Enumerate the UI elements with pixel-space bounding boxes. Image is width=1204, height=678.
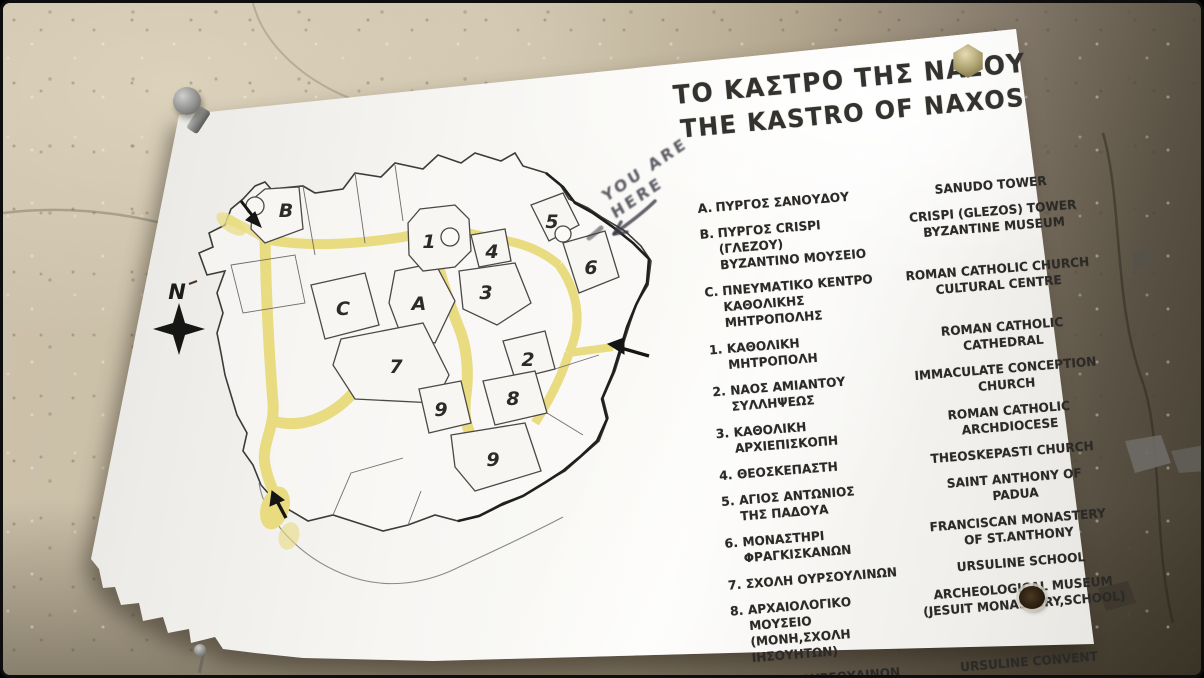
legend-greek: ΑΡΧΑΙΟΛΟΓΙΚΟ ΜΟΥΣΕΙΟ (ΜΟΝΗ,ΣΧΟΛΗ ΙΗΣΟΥΗΤ… [747,590,907,666]
legend-greek: ΣΧΟΛΗ ΟΥΡΣΟΥΛΙΝΩΝ [745,564,897,592]
legend-english: ROMAN CATHOLIC CATHEDRAL [899,311,1107,359]
legend-english: CRISPI (GLEZOS) TOWER BYZANTINE MUSEUM [890,195,1099,259]
label-7: 7 [389,356,403,378]
legend-english: ROMAN CATHOLIC ARCHDIOCESE [906,394,1114,442]
label-9b: 9 [486,449,499,471]
legend-greek: ΑΓΙΟΣ ΑΝΤΩΝΙΟΣ ΤΗΣ ΠΑΔΟΥΑ [739,483,857,524]
label-9a: 9 [434,399,447,421]
building-1-cathedral [408,205,471,271]
legend-english: ROMAN CATHOLIC CHURCH CULTURAL CENTRE [894,253,1103,317]
label-8: 8 [506,388,519,410]
compass-tick [189,281,197,284]
compass-star-icon [153,303,205,355]
legend-key: 4. [718,467,737,484]
photo-of-kastro-map-sign: ΤΟ ΚΑΣΤΡΟ ΤΗΣ ΝΑΞΟΥ THE KASTRO OF NAXOS [0,0,1204,678]
legend-greek: ΠΝΕΥΜΑΤΙΚΟ ΚΕΝΤΡΟ ΚΑΘΟΛΙΚΗΣ ΜΗΤΡΟΠΟΛΗΣ [722,271,881,331]
legend-greek: ΠΥΡΓΟΣ CRISPI (ΓΛΕΖΟΥ) ΒΥΖΑΝΤΙΝΟ ΜΟΥΣΕΙΟ [717,213,876,273]
legend-english: URSULINE CONVENT [926,646,1132,678]
legend-greek: ΜΟΝΗ ΟΥΡΣΟΥΛΙΝΩΝ [753,664,901,678]
legend-english: FRANCISCAN MONASTERY OF ST.ANTHONY [915,504,1123,552]
label-1: 1 [422,231,435,253]
round-bolt-icon [173,87,201,115]
legend-english: IMMACULATE CONCEPTION CHURCH [902,353,1110,401]
legend-greek: ΝΑΟΣ ΑΜΙΑΝΤΟΥ ΣΥΛΛΗΨΕΩΣ [730,374,847,415]
map-legend: A.ΠΥΡΓΟΣ ΣΑΝΟΥΔΟΥ SANUDO TOWER B.ΠΥΡΓΟΣ … [697,169,1138,678]
label-A: A [410,293,427,315]
cathedral-dome-circle [441,228,459,246]
legend-english: ARCHEOLOGICAL MUSEUM (JESUIT MONASTERY,S… [920,572,1130,652]
label-2: 2 [521,349,534,371]
arrow-east-shaft [621,348,649,356]
label-B: B [279,200,293,222]
label-4: 4 [484,241,498,263]
compass-north-label: N [168,280,186,304]
label-C: C [336,298,350,320]
label-3: 3 [479,282,492,304]
empty-bolt-hole-icon [1019,586,1045,609]
legend-greek: ΘΕΟΣΚΕΠΑΣΤΗ [736,459,838,483]
legend-greek: ΚΑΘΟΛΙΚΗ ΑΡΧΙΕΠΙΣΚΟΠΗ [733,412,890,456]
small-screw-icon [194,644,206,656]
label-5: 5 [545,211,558,233]
legend-greek: ΜΟΝΑΣΤΗΡΙ ΦΡΑΓΚΙΣΚΑΝΩΝ [742,526,852,567]
legend-english: SAINT ANTHONY OF PADUA [911,462,1119,510]
legend-key: A. [697,200,716,217]
label-6: 6 [584,257,597,279]
legend-key: 7. [727,576,746,593]
legend-greek: ΚΑΘΟΛΙΚΗ ΜΗΤΡΟΠΟΛΗ [726,329,883,373]
compass-rose: N [153,280,205,355]
